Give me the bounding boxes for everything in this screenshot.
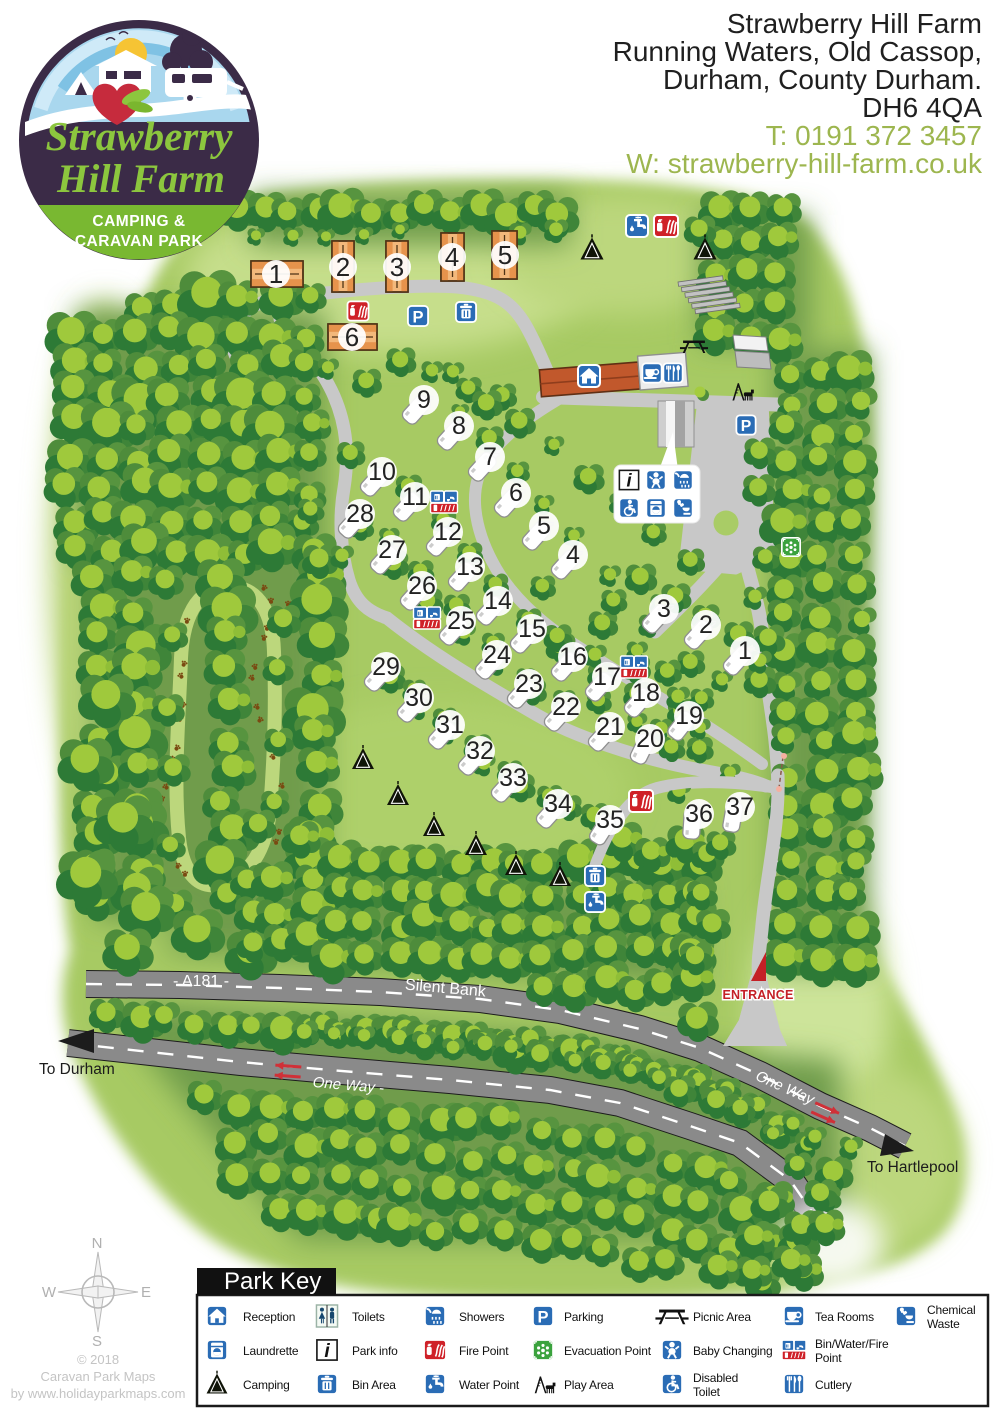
svg-text:9: 9 — [417, 386, 431, 414]
svg-text:37: 37 — [726, 793, 754, 821]
svg-text:25: 25 — [447, 607, 475, 635]
svg-text:5: 5 — [498, 240, 512, 270]
svg-text:Camping: Camping — [243, 1378, 290, 1392]
svg-text:Parking: Parking — [564, 1310, 603, 1324]
svg-text:1: 1 — [269, 259, 283, 289]
svg-text:32: 32 — [466, 737, 494, 765]
svg-text:Durham, County Durham.: Durham, County Durham. — [663, 64, 982, 95]
svg-text:Running Waters, Old Cassop,: Running Waters, Old Cassop, — [613, 36, 982, 67]
svg-text:N: N — [92, 1235, 103, 1252]
svg-text:To Hartlepool: To Hartlepool — [867, 1159, 958, 1176]
svg-text:33: 33 — [499, 764, 527, 792]
svg-text:2: 2 — [336, 252, 350, 282]
svg-text:13: 13 — [456, 553, 484, 581]
svg-text:18: 18 — [632, 679, 660, 707]
svg-text:Baby Changing: Baby Changing — [693, 1344, 772, 1358]
svg-text:36: 36 — [685, 800, 713, 828]
svg-text:CAMPING &: CAMPING & — [92, 213, 185, 230]
svg-text:16: 16 — [559, 643, 587, 671]
svg-text:26: 26 — [408, 572, 436, 600]
svg-text:6: 6 — [345, 322, 359, 352]
svg-text:15: 15 — [518, 615, 546, 643]
svg-text:34: 34 — [544, 790, 572, 818]
svg-text:4: 4 — [566, 541, 580, 569]
svg-text:- A181 -: - A181 - — [173, 973, 229, 990]
svg-text:Chemical: Chemical — [927, 1303, 975, 1317]
svg-text:Strawberry: Strawberry — [46, 113, 234, 159]
svg-text:8: 8 — [452, 412, 466, 440]
svg-text:21: 21 — [596, 713, 624, 741]
svg-text:14: 14 — [484, 587, 512, 615]
svg-text:CARAVAN PARK: CARAVAN PARK — [75, 233, 204, 250]
svg-text:1: 1 — [738, 637, 752, 665]
svg-text:2: 2 — [699, 611, 713, 639]
svg-text:6: 6 — [509, 479, 523, 507]
svg-text:Play Area: Play Area — [564, 1378, 614, 1392]
svg-text:Disabled: Disabled — [693, 1371, 738, 1385]
svg-text:E: E — [141, 1284, 151, 1301]
svg-text:23: 23 — [515, 670, 543, 698]
svg-text:Hill Farm: Hill Farm — [56, 156, 225, 201]
svg-text:Toilet: Toilet — [693, 1385, 721, 1399]
svg-text:12: 12 — [434, 518, 462, 546]
svg-text:17: 17 — [593, 663, 621, 691]
svg-text:Reception: Reception — [243, 1310, 295, 1324]
svg-text:20: 20 — [636, 725, 664, 753]
svg-text:T: 0191 372 3457: T: 0191 372 3457 — [766, 120, 982, 151]
svg-text:10: 10 — [368, 458, 396, 486]
svg-text:W: strawberry-hill-farm.co.uk: W: strawberry-hill-farm.co.uk — [626, 148, 983, 179]
svg-text:Fire Point: Fire Point — [459, 1344, 509, 1358]
svg-text:24: 24 — [483, 641, 511, 669]
svg-text:Point: Point — [815, 1351, 842, 1365]
svg-text:28: 28 — [346, 500, 374, 528]
svg-text:Toilets: Toilets — [352, 1310, 385, 1324]
svg-text:3: 3 — [390, 252, 404, 282]
svg-text:4: 4 — [445, 242, 459, 272]
svg-text:Waste: Waste — [927, 1317, 960, 1331]
svg-text:Tea Rooms: Tea Rooms — [815, 1310, 874, 1324]
svg-text:35: 35 — [596, 806, 624, 834]
svg-text:Bin Area: Bin Area — [352, 1378, 396, 1392]
svg-text:To Durham: To Durham — [39, 1061, 115, 1078]
svg-text:3: 3 — [657, 595, 671, 623]
svg-text:Bin/Water/Fire: Bin/Water/Fire — [815, 1337, 889, 1351]
svg-text:29: 29 — [372, 653, 400, 681]
svg-text:DH6 4QA: DH6 4QA — [862, 92, 982, 123]
svg-text:Park Key: Park Key — [224, 1268, 321, 1295]
svg-text:Caravan Park Maps: Caravan Park Maps — [41, 1369, 156, 1384]
svg-text:30: 30 — [405, 684, 433, 712]
svg-text:Showers: Showers — [459, 1310, 504, 1324]
svg-text:S: S — [92, 1333, 102, 1350]
svg-text:© 2018: © 2018 — [77, 1352, 119, 1367]
svg-text:Cutlery: Cutlery — [815, 1378, 852, 1392]
svg-text:Evacuation Point: Evacuation Point — [564, 1344, 652, 1358]
svg-text:Water Point: Water Point — [459, 1378, 520, 1392]
svg-text:Strawberry Hill Farm: Strawberry Hill Farm — [727, 8, 982, 39]
svg-text:19: 19 — [675, 702, 703, 730]
svg-text:31: 31 — [436, 711, 464, 739]
svg-text:11: 11 — [402, 483, 428, 511]
svg-text:ENTRANCE: ENTRANCE — [722, 988, 793, 1002]
svg-text:27: 27 — [378, 536, 406, 564]
svg-text:Park info: Park info — [352, 1344, 398, 1358]
svg-text:Picnic Area: Picnic Area — [693, 1310, 751, 1324]
svg-text:by www.holidayparkmaps.com: by www.holidayparkmaps.com — [11, 1386, 186, 1401]
svg-text:5: 5 — [537, 512, 551, 540]
svg-text:22: 22 — [552, 693, 580, 721]
svg-text:7: 7 — [483, 443, 497, 471]
svg-text:W: W — [42, 1284, 57, 1301]
svg-text:Laundrette: Laundrette — [243, 1344, 299, 1358]
